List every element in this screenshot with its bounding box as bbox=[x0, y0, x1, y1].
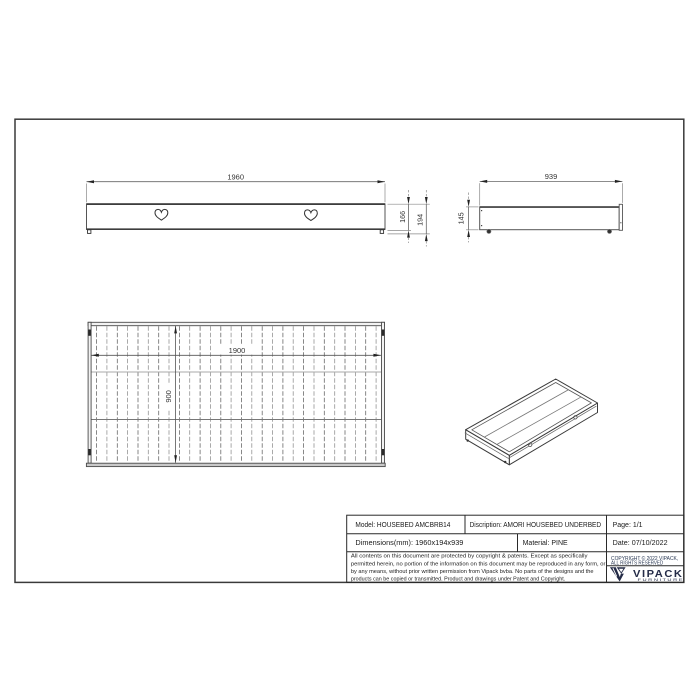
svg-text:194: 194 bbox=[416, 214, 425, 226]
svg-text:900: 900 bbox=[164, 390, 173, 403]
svg-text:products can be copied or tran: products can be copied or transmitted. P… bbox=[351, 577, 566, 583]
svg-text:145: 145 bbox=[456, 212, 465, 224]
svg-text:All contents on this document: All contents on this document are protec… bbox=[351, 554, 588, 560]
svg-text:1900: 1900 bbox=[229, 346, 246, 355]
svg-text:Material: PINE: Material: PINE bbox=[523, 540, 568, 547]
svg-text:939: 939 bbox=[545, 172, 558, 181]
svg-text:permitted herein, no portion o: permitted herein, no portion of the info… bbox=[351, 561, 606, 567]
svg-text:Discription: AMORI HOUSEBED UN: Discription: AMORI HOUSEBED UNDERBED bbox=[470, 522, 601, 529]
svg-text:by any means, without prior wr: by any means, without prior written perm… bbox=[351, 569, 594, 575]
svg-text:ALL RIGHTS RESERVED: ALL RIGHTS RESERVED bbox=[611, 561, 663, 567]
svg-text:1960: 1960 bbox=[227, 172, 244, 181]
svg-text:Model: HOUSEBED AMCBRB14: Model: HOUSEBED AMCBRB14 bbox=[355, 522, 450, 529]
svg-text:Date: 07/10/2022: Date: 07/10/2022 bbox=[613, 540, 668, 547]
svg-text:Page: 1/1: Page: 1/1 bbox=[613, 522, 643, 529]
svg-text:166: 166 bbox=[398, 211, 407, 223]
svg-text:Dimensions(mm): 1960x194x939: Dimensions(mm): 1960x194x939 bbox=[355, 540, 463, 547]
svg-text:F U R N I T U R E: F U R N I T U R E bbox=[638, 578, 683, 582]
